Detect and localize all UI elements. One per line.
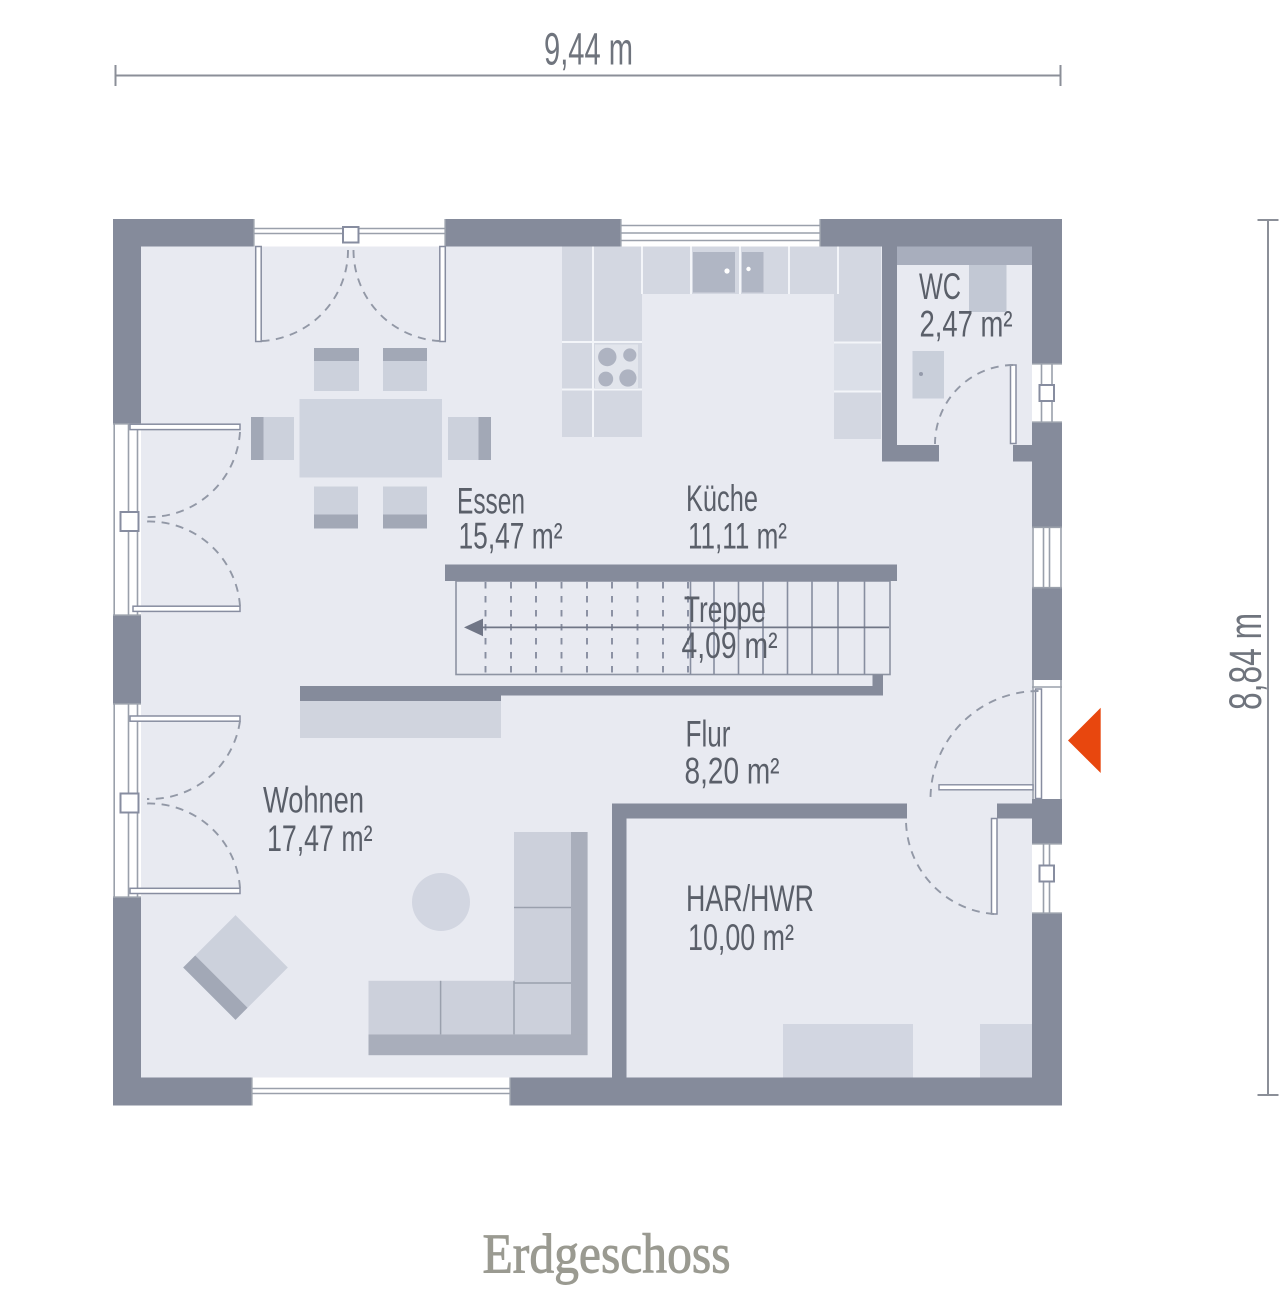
svg-text:WC: WC xyxy=(919,266,961,307)
svg-text:8,20 m²: 8,20 m² xyxy=(685,750,780,791)
svg-text:Küche: Küche xyxy=(686,478,758,519)
svg-text:Flur: Flur xyxy=(686,714,731,755)
svg-text:Treppe: Treppe xyxy=(684,589,766,630)
svg-text:Wohnen: Wohnen xyxy=(263,780,364,821)
svg-text:10,00 m²: 10,00 m² xyxy=(688,917,794,958)
svg-text:8,84 m: 8,84 m xyxy=(1220,613,1271,710)
svg-text:4,09 m²: 4,09 m² xyxy=(682,625,778,666)
svg-text:17,47 m²: 17,47 m² xyxy=(267,818,373,859)
svg-text:9,44 m: 9,44 m xyxy=(544,24,633,75)
svg-text:2,47 m²: 2,47 m² xyxy=(920,303,1013,344)
svg-text:HAR/HWR: HAR/HWR xyxy=(686,878,814,919)
svg-text:Erdgeschoss: Erdgeschoss xyxy=(483,1223,731,1285)
svg-text:11,11 m²: 11,11 m² xyxy=(688,516,787,557)
svg-text:15,47 m²: 15,47 m² xyxy=(459,516,563,557)
